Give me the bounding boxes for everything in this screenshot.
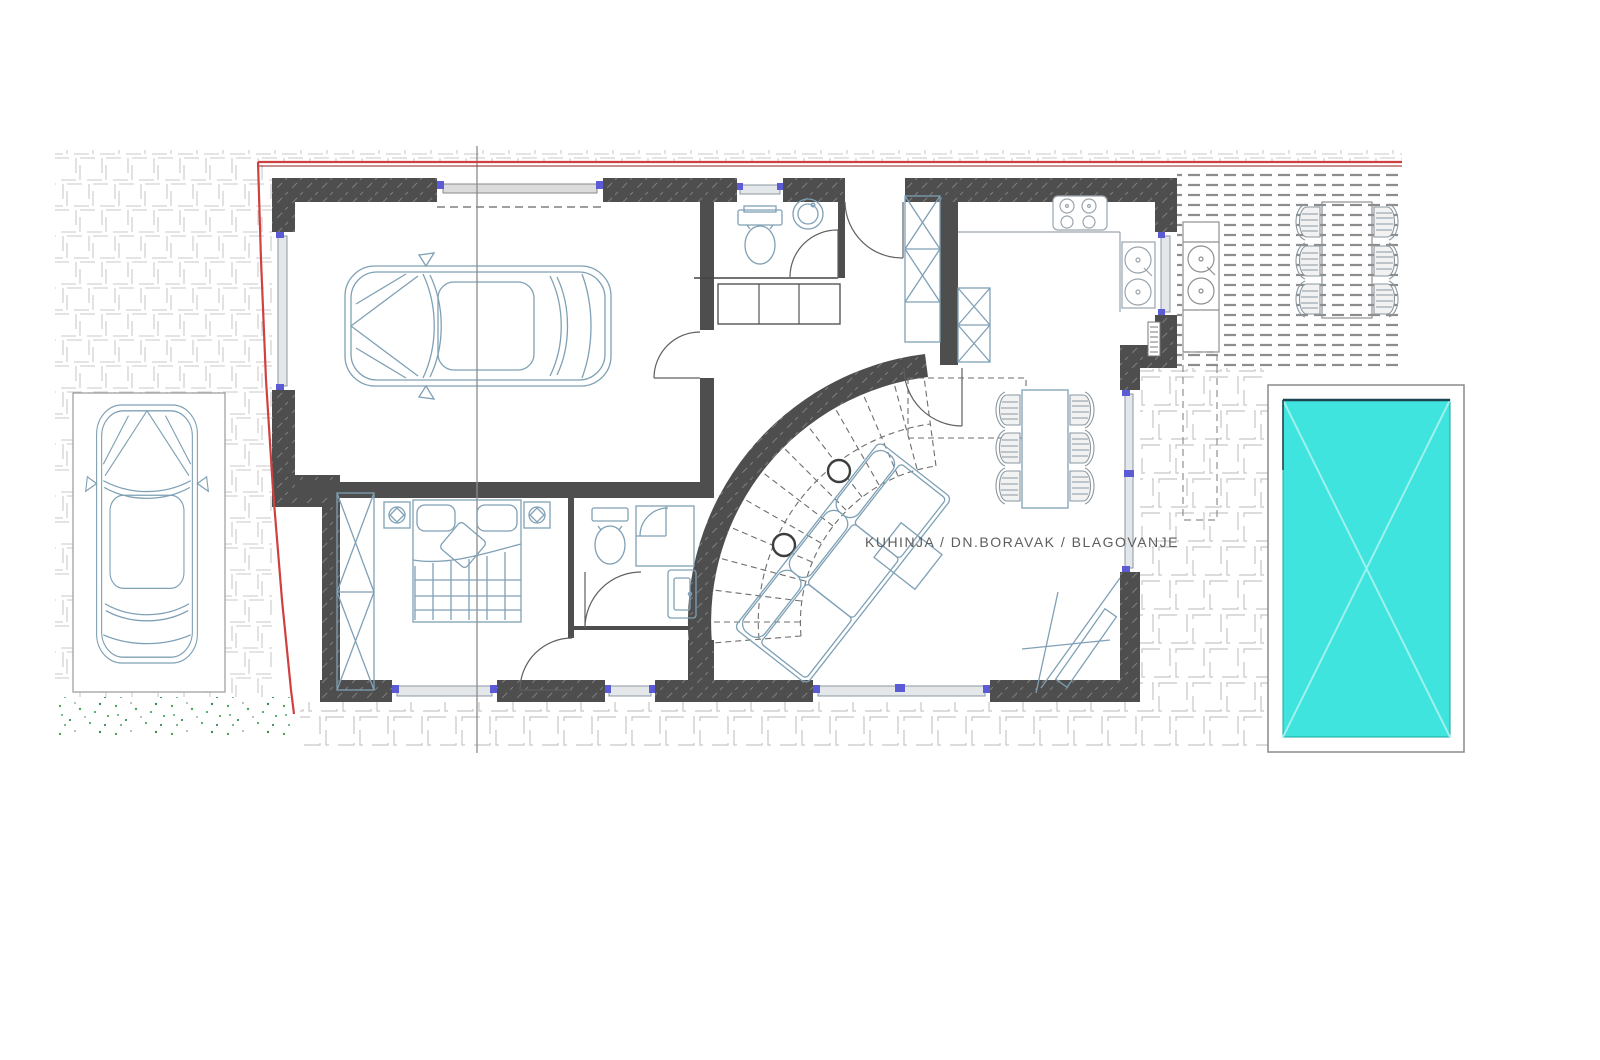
- window-bath-south: [605, 680, 655, 702]
- column: [773, 534, 795, 556]
- cooktop-icon: [1053, 196, 1107, 230]
- column: [828, 460, 850, 482]
- room-label-kitchen-living-dining: KUHINJA / DN.BORAVAK / BLAGOVANJE: [865, 534, 1179, 550]
- lawn-strip: [55, 697, 290, 735]
- parking-space: [73, 393, 225, 692]
- window-living-south: [813, 680, 990, 702]
- window-bedroom-south: [392, 680, 497, 702]
- dining-table-icon: [996, 390, 1094, 508]
- floor-plan-canvas: KUHINJA / DN.BORAVAK / BLAGOVANJE: [0, 0, 1600, 1060]
- window-wc: [737, 178, 783, 202]
- yard-tiles-bottom: [300, 702, 1140, 748]
- swimming-pool: [1268, 385, 1464, 752]
- window-garage-west: [272, 232, 295, 390]
- floor-plan-drawing: KUHINJA / DN.BORAVAK / BLAGOVANJE: [0, 0, 1600, 1060]
- hall-closet: [718, 284, 840, 324]
- vent-icon: [1148, 322, 1160, 356]
- kitchen-sink-icon: [1122, 242, 1155, 308]
- window-kitchen-east: [1155, 232, 1177, 315]
- yard-tiles-right: [1140, 368, 1268, 748]
